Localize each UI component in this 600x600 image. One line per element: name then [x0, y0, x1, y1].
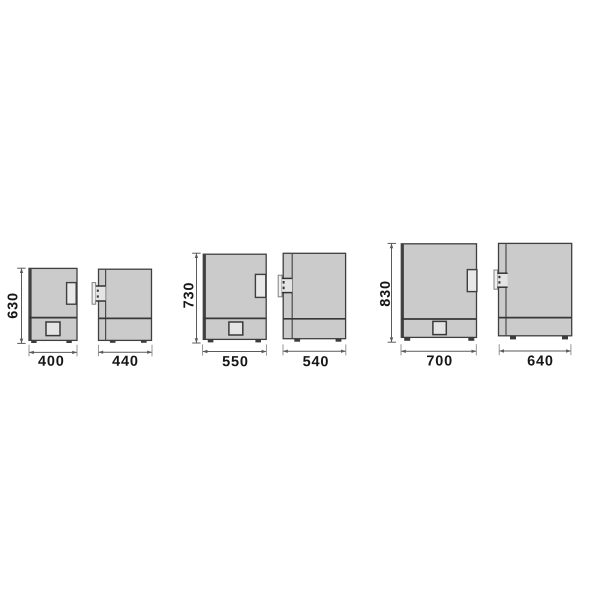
- svg-text:730: 730: [182, 282, 198, 309]
- svg-text:700: 700: [426, 353, 453, 369]
- svg-text:440: 440: [112, 354, 139, 370]
- svg-text:550: 550: [222, 354, 249, 370]
- svg-text:540: 540: [303, 354, 330, 370]
- svg-text:830: 830: [378, 280, 394, 307]
- svg-text:400: 400: [38, 354, 65, 370]
- svg-text:640: 640: [527, 353, 554, 369]
- svg-text:630: 630: [5, 292, 21, 319]
